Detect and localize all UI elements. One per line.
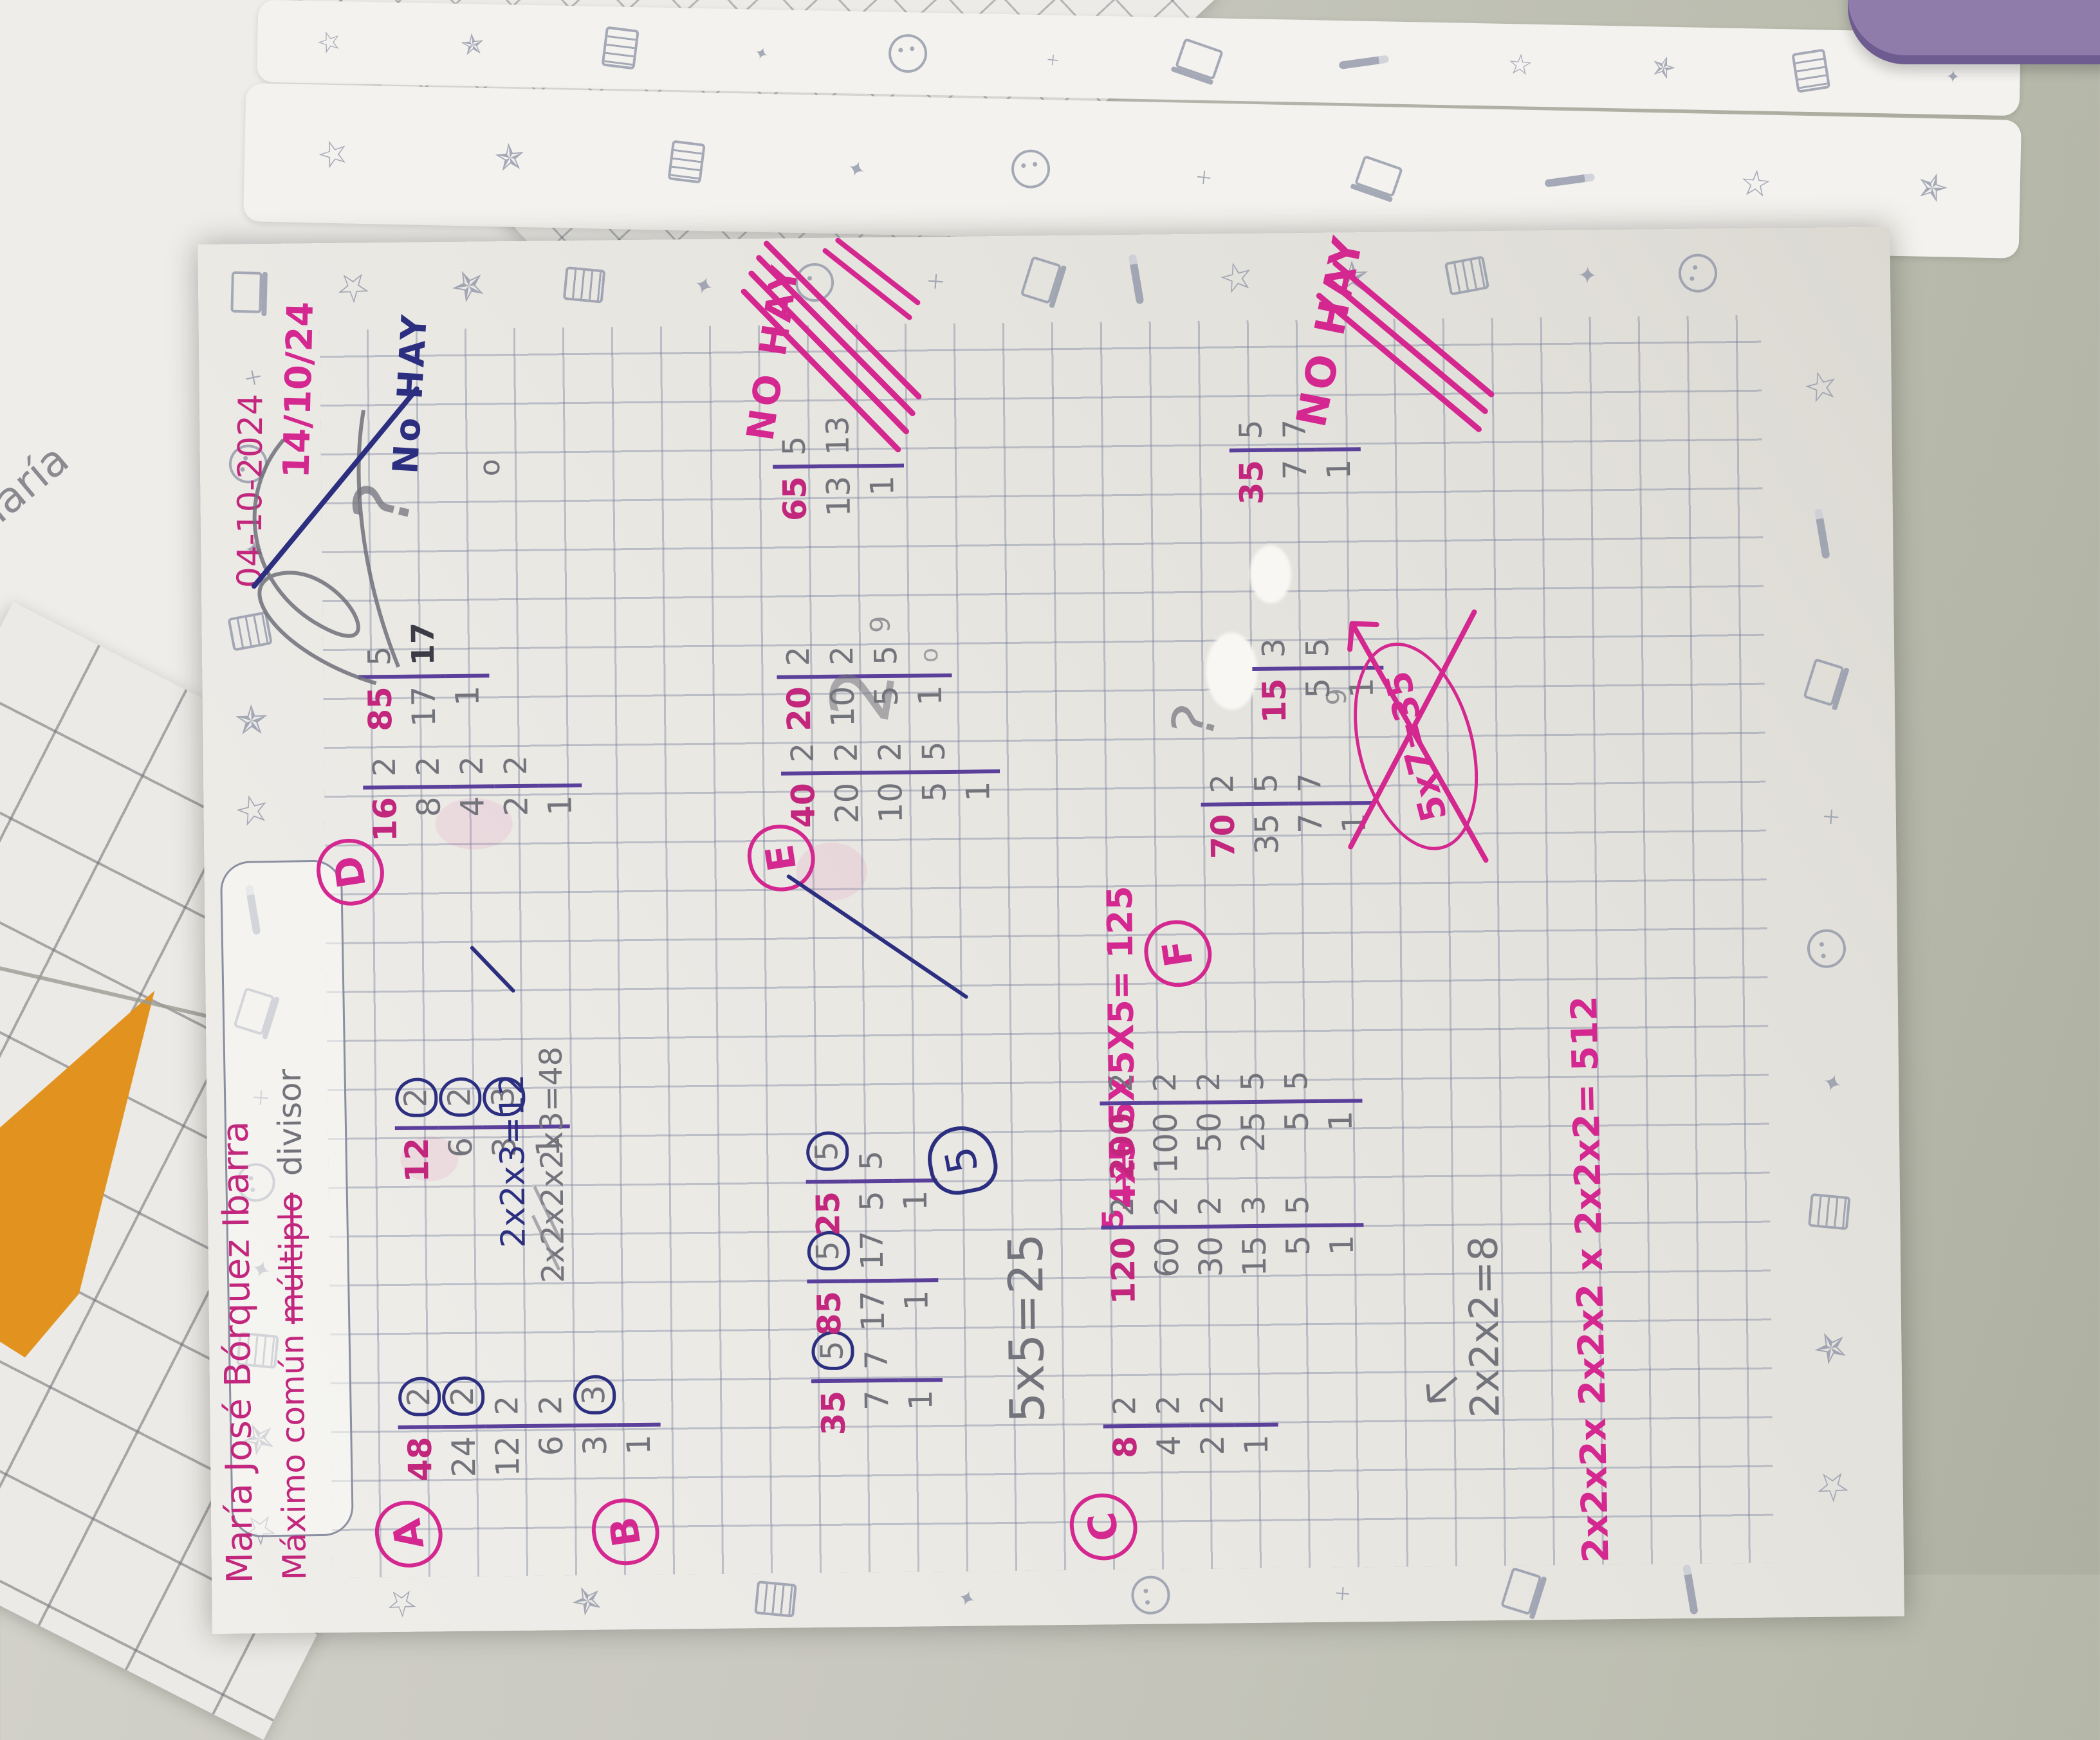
dividend: 10 — [872, 774, 910, 859]
table-row: 1313 — [816, 405, 861, 552]
dividend: 13 — [820, 468, 858, 552]
table-row: 355 — [1229, 389, 1274, 536]
sparkle-icon — [843, 145, 872, 185]
page-title: Máximo común múltiplodivisor — [271, 1069, 313, 1580]
divisor: 2 — [1150, 1395, 1186, 1415]
plus-icon — [1193, 153, 1215, 191]
title-struck-word: múltiplo — [272, 1193, 311, 1324]
pencil-dot-e: o — [915, 648, 943, 663]
divisor-cell: 2 — [493, 725, 538, 789]
notebook-icon — [754, 1580, 797, 1618]
table-row: 1 — [955, 710, 1000, 857]
table-row: 242 — [441, 1366, 486, 1513]
dividend: 20 — [828, 774, 866, 859]
divisor: 2 — [442, 1377, 484, 1416]
table-row: 62 — [529, 1364, 574, 1512]
divisor-cell: 2 — [1143, 1041, 1187, 1105]
divisor: 7 — [1292, 773, 1328, 792]
star-icon — [379, 1582, 424, 1625]
dividend: 20 — [780, 679, 818, 763]
pencil-small-f: 9 — [1321, 688, 1352, 706]
pencil-icon — [1814, 508, 1830, 559]
penguin-icon — [1674, 250, 1722, 297]
star-icon — [1215, 259, 1257, 297]
dividend: 7 — [858, 1382, 896, 1467]
table-row: 1 — [860, 405, 905, 552]
notebook-icon — [562, 266, 605, 304]
star-icon — [1807, 1463, 1857, 1510]
dividend: 48 — [401, 1429, 439, 1513]
shootstar-icon — [447, 267, 490, 306]
dividend: 4 — [1150, 1427, 1188, 1512]
dividend: 1 — [1336, 805, 1374, 889]
factor-table-70: 702355771 — [1201, 742, 1377, 890]
divisor: 3 — [1256, 638, 1292, 658]
divisor-cell: 2 — [398, 1366, 442, 1429]
star-icon — [313, 25, 346, 60]
dividend: 1 — [1238, 1427, 1276, 1511]
divisor-cell: 5 — [357, 616, 401, 679]
star-icon — [1506, 50, 1534, 80]
divisor-cell — [955, 710, 1000, 774]
dividend: 35 — [815, 1383, 852, 1467]
table-row: 153 — [1251, 607, 1296, 755]
dividend: 17 — [405, 678, 443, 762]
table-row: 55 — [1295, 607, 1340, 755]
dividend: 85 — [810, 1283, 848, 1368]
dividend: 120 — [1104, 1229, 1143, 1328]
student-name: María José Bórquez Ibarra — [215, 1121, 262, 1584]
divisor-cell: 5 — [806, 1121, 850, 1184]
divisor-cell: 2 — [1103, 1365, 1147, 1429]
notebook-icon — [667, 140, 705, 183]
result-pencil-b: 5x5=25 — [999, 1233, 1056, 1423]
divisor-cell — [860, 405, 904, 468]
divisor: 5 — [1278, 1070, 1314, 1090]
laptop-icon — [1354, 154, 1403, 197]
dividend: 5 — [916, 774, 953, 858]
divisor-cell — [537, 724, 582, 788]
dividend: 35 — [1233, 452, 1271, 536]
divisor-cell: 13 — [816, 405, 860, 468]
divisor: 2 — [1204, 774, 1240, 794]
whiteout-blob — [1206, 632, 1258, 710]
table-row: 2002 — [1099, 1042, 1145, 1204]
laptop-icon — [1803, 658, 1845, 706]
divisor-cell — [445, 614, 489, 678]
laptop-icon — [230, 271, 262, 313]
dividend: 1 — [1320, 451, 1358, 535]
shootstar-icon — [567, 1584, 607, 1618]
divisor-cell — [616, 1364, 661, 1427]
shootstar-icon — [493, 138, 526, 177]
divisor-cell: 2 — [438, 1067, 483, 1130]
dividend: 100 — [1147, 1104, 1185, 1203]
plus-icon — [1044, 41, 1062, 71]
divisor: 2 — [1191, 1072, 1227, 1092]
dividend: 15 — [1255, 670, 1293, 755]
dividend: 24 — [445, 1429, 483, 1513]
divisor: 2 — [1103, 1072, 1139, 1092]
divisor-cell: 2 — [1147, 1364, 1191, 1428]
notebook-icon — [1444, 255, 1490, 296]
pencil-small-e: 9 — [864, 616, 896, 633]
divisor-cell: 2 — [441, 1366, 486, 1429]
table-row: 255 — [806, 1121, 851, 1268]
star-icon — [327, 264, 378, 311]
factor-table-65: 65513131 — [772, 405, 905, 553]
factor-table-8: 8242221 — [1103, 1364, 1279, 1512]
dividend: 1 — [902, 1382, 940, 1466]
pencil-icon — [1128, 253, 1144, 304]
dividend: 7 — [1276, 452, 1314, 536]
plus-icon — [226, 365, 269, 392]
dividend: 1 — [959, 773, 997, 857]
dividend: 65 — [776, 468, 814, 553]
purple-case — [1848, 0, 2100, 64]
dividend: 1 — [541, 787, 579, 872]
penguin-icon — [1128, 1573, 1172, 1617]
divisor: 2 — [498, 755, 534, 775]
divisor: 2 — [1194, 1395, 1230, 1415]
dividend: 5 — [853, 1183, 891, 1267]
star-icon — [1800, 368, 1841, 406]
shootstar-icon — [459, 30, 486, 60]
table-row: 1 — [1234, 1364, 1279, 1511]
divisor: 5 — [868, 645, 904, 665]
divisor: 5 — [1248, 773, 1284, 793]
dividend: 1 — [1322, 1103, 1360, 1201]
table-row: 1 — [893, 1119, 938, 1267]
dividend: 200 — [1103, 1105, 1141, 1204]
table-row: 122 — [485, 1365, 530, 1512]
date-marker: 14/10/24 — [275, 301, 322, 479]
table-row: 1 — [907, 614, 952, 762]
dividend: 50 — [1190, 1104, 1229, 1202]
table-row: 355 — [1244, 742, 1289, 890]
dividend: 5 — [1278, 1103, 1316, 1202]
table-row: 502 — [1186, 1041, 1232, 1202]
sparkle-icon — [1806, 1066, 1850, 1097]
star-icon — [312, 132, 355, 176]
divisor-cell: 5 — [1274, 1040, 1318, 1104]
pencil-icon — [1682, 1564, 1698, 1615]
divisor-cell: 2 — [529, 1364, 573, 1428]
pencil-mark-d: o — [474, 459, 506, 476]
dividend: 15 — [1235, 1228, 1274, 1326]
notebook-icon — [601, 26, 639, 70]
table-row: 1 — [1318, 1039, 1363, 1201]
dividend: 4 — [454, 788, 492, 872]
divisor-cell: 2 — [394, 1067, 439, 1130]
divisor-cell — [1318, 1039, 1362, 1103]
divisor-cell: 2 — [485, 1365, 530, 1429]
result-pencil-a: 2x2x2x2x3=48 — [533, 1047, 571, 1283]
laptop-icon — [1175, 38, 1224, 80]
table-row: 22 — [1190, 1364, 1235, 1511]
divisor: 5 — [806, 1131, 849, 1171]
notebook-icon — [227, 611, 273, 652]
divisor-cell: 2 — [1099, 1042, 1143, 1106]
divisor-cell: 5 — [1295, 607, 1340, 671]
table-row: 62 — [438, 1067, 483, 1214]
factor-table-200: 20021002502255551 — [1099, 1039, 1363, 1203]
dividend: 25 — [1234, 1104, 1273, 1202]
divisor-cell: 2 — [1186, 1041, 1231, 1104]
divisor: 2 — [398, 1377, 441, 1416]
sparkle-icon — [677, 268, 722, 299]
dividend: 30 — [1192, 1228, 1230, 1326]
divisor: 2 — [489, 1395, 525, 1415]
dividend: 12 — [489, 1428, 527, 1512]
divisor-cell: 2 — [1201, 743, 1245, 807]
divisor: 2 — [1147, 1072, 1183, 1092]
plus-icon — [1805, 805, 1846, 828]
notebook-page: María José Bórquez Ibarra Máximo común m… — [198, 227, 1904, 1634]
pencil-icon — [1338, 55, 1389, 69]
table-row: 1 — [445, 614, 490, 762]
date-handwritten: 04-10-2024 — [230, 394, 270, 589]
notebook-icon — [1808, 1193, 1851, 1231]
plus-icon — [909, 270, 950, 293]
dividend: 5 — [1299, 670, 1337, 755]
plus-icon — [1319, 1583, 1356, 1604]
dividend: 6 — [442, 1130, 480, 1214]
dividend: 8 — [1107, 1428, 1145, 1512]
divisor-cell — [1234, 1364, 1278, 1427]
divisor: 3 — [573, 1375, 616, 1415]
shootstar-icon — [1648, 51, 1679, 85]
shootstar-icon — [227, 699, 275, 742]
dividend: 85 — [361, 679, 399, 763]
table-row: 122 — [394, 1067, 439, 1214]
table-row: 55 — [1274, 1040, 1320, 1202]
title-prefix: Máximo común — [273, 1324, 313, 1580]
crossed-result-f: 5x7=35 — [1376, 667, 1455, 827]
table-row: 1002 — [1143, 1041, 1188, 1203]
dividend: 25 — [809, 1184, 847, 1268]
factor-table-25: 255551 — [806, 1119, 938, 1267]
dividend: 1 — [863, 468, 901, 552]
table-row: 1717 — [401, 615, 446, 762]
dividend: 17 — [854, 1283, 892, 1367]
table-row: 33 — [573, 1364, 618, 1511]
divisor-cell: 3 — [1251, 607, 1296, 671]
table-row: 22 — [493, 725, 539, 872]
dividend: 1 — [897, 1182, 935, 1267]
divisor: 5 — [853, 1150, 889, 1170]
divisor-cell — [907, 614, 952, 678]
sparkle-icon — [1563, 264, 1603, 286]
result-blue-a: 2x2x3=12 — [493, 1074, 533, 1248]
dividend: 35 — [1248, 805, 1286, 890]
dividend: 6 — [533, 1427, 571, 1512]
title-pencil-correction: divisor — [271, 1069, 309, 1177]
divisor: 2 — [780, 646, 816, 666]
dividend: 12 — [398, 1130, 436, 1214]
table-row: 1 — [616, 1364, 661, 1511]
factor-table-48: 48224212262331 — [398, 1364, 661, 1513]
shootstar-icon — [1912, 166, 1952, 210]
dividend: 7 — [1292, 805, 1330, 890]
table-row: 702 — [1201, 743, 1246, 890]
whiteout-blob — [1249, 545, 1291, 603]
table-row: 42 — [1147, 1364, 1192, 1512]
divisor-cell: 5 — [849, 1120, 894, 1184]
divisor: 17 — [405, 622, 442, 665]
divisor: 13 — [820, 416, 856, 455]
dividend: 3 — [576, 1427, 614, 1511]
dividend: 1 — [1323, 1227, 1361, 1325]
star-icon — [1738, 165, 1774, 203]
dividend: 1 — [898, 1282, 935, 1366]
table-row: 55 — [849, 1120, 894, 1267]
dividend: 8 — [410, 789, 448, 873]
table-row: 82 — [1103, 1365, 1148, 1512]
shootstar-icon — [1809, 1329, 1852, 1368]
penguin-icon — [887, 32, 930, 75]
table-row: 855 — [357, 616, 402, 763]
table-row: 255 — [1230, 1041, 1276, 1202]
factor-table-85b: 85517171 — [357, 614, 490, 762]
star-icon — [231, 792, 273, 830]
laptop-icon — [1020, 256, 1062, 304]
sparkle-icon — [943, 1583, 983, 1611]
divisor-cell: 2 — [776, 616, 820, 679]
divisor-cell: 2 — [1190, 1364, 1235, 1427]
divisor: 5 — [1235, 1071, 1271, 1091]
notebook-icon — [1791, 48, 1830, 93]
dividend: 70 — [1204, 806, 1242, 890]
table-row: 482 — [398, 1366, 443, 1513]
photo-scene: { "scene": { "desk_color_light": "#d2d1c… — [0, 0, 2100, 1575]
dividend: 5 — [1279, 1227, 1318, 1326]
dividend: 2 — [1194, 1427, 1232, 1511]
divisor: 2 — [1107, 1395, 1143, 1415]
divisor: 5 — [1300, 637, 1336, 657]
border-doodles-right — [294, 228, 1755, 333]
sparkle-icon — [751, 35, 775, 66]
divisor-cell: 5 — [1229, 389, 1273, 453]
divisor: 5 — [362, 646, 398, 666]
result-pencil-c: 2x2x2=8 — [1460, 1236, 1509, 1418]
pencil-icon — [1544, 173, 1595, 187]
laptop-icon — [1500, 1567, 1542, 1615]
dividend: 2 — [497, 788, 535, 872]
dividend: 40 — [784, 775, 822, 859]
divisor-cell: 17 — [401, 615, 445, 679]
dividend: 1 — [448, 677, 486, 762]
divisor-cell: 5 — [1230, 1041, 1275, 1104]
dividend: 60 — [1148, 1229, 1186, 1327]
divisor: 2 — [533, 1395, 569, 1415]
dividend: 1 — [911, 677, 949, 762]
penguin-icon — [1805, 927, 1848, 971]
border-doodles-bottom — [1756, 317, 1897, 1557]
table-row: 77 — [1288, 742, 1333, 890]
dividend: 16 — [366, 789, 404, 874]
penguin-icon — [1009, 147, 1053, 190]
divisor: 2 — [395, 1078, 438, 1117]
divisor: 5 — [1233, 419, 1269, 439]
table-row: 1 — [537, 724, 582, 872]
divisor: 2 — [439, 1077, 481, 1117]
divisor-cell: 3 — [573, 1364, 617, 1427]
